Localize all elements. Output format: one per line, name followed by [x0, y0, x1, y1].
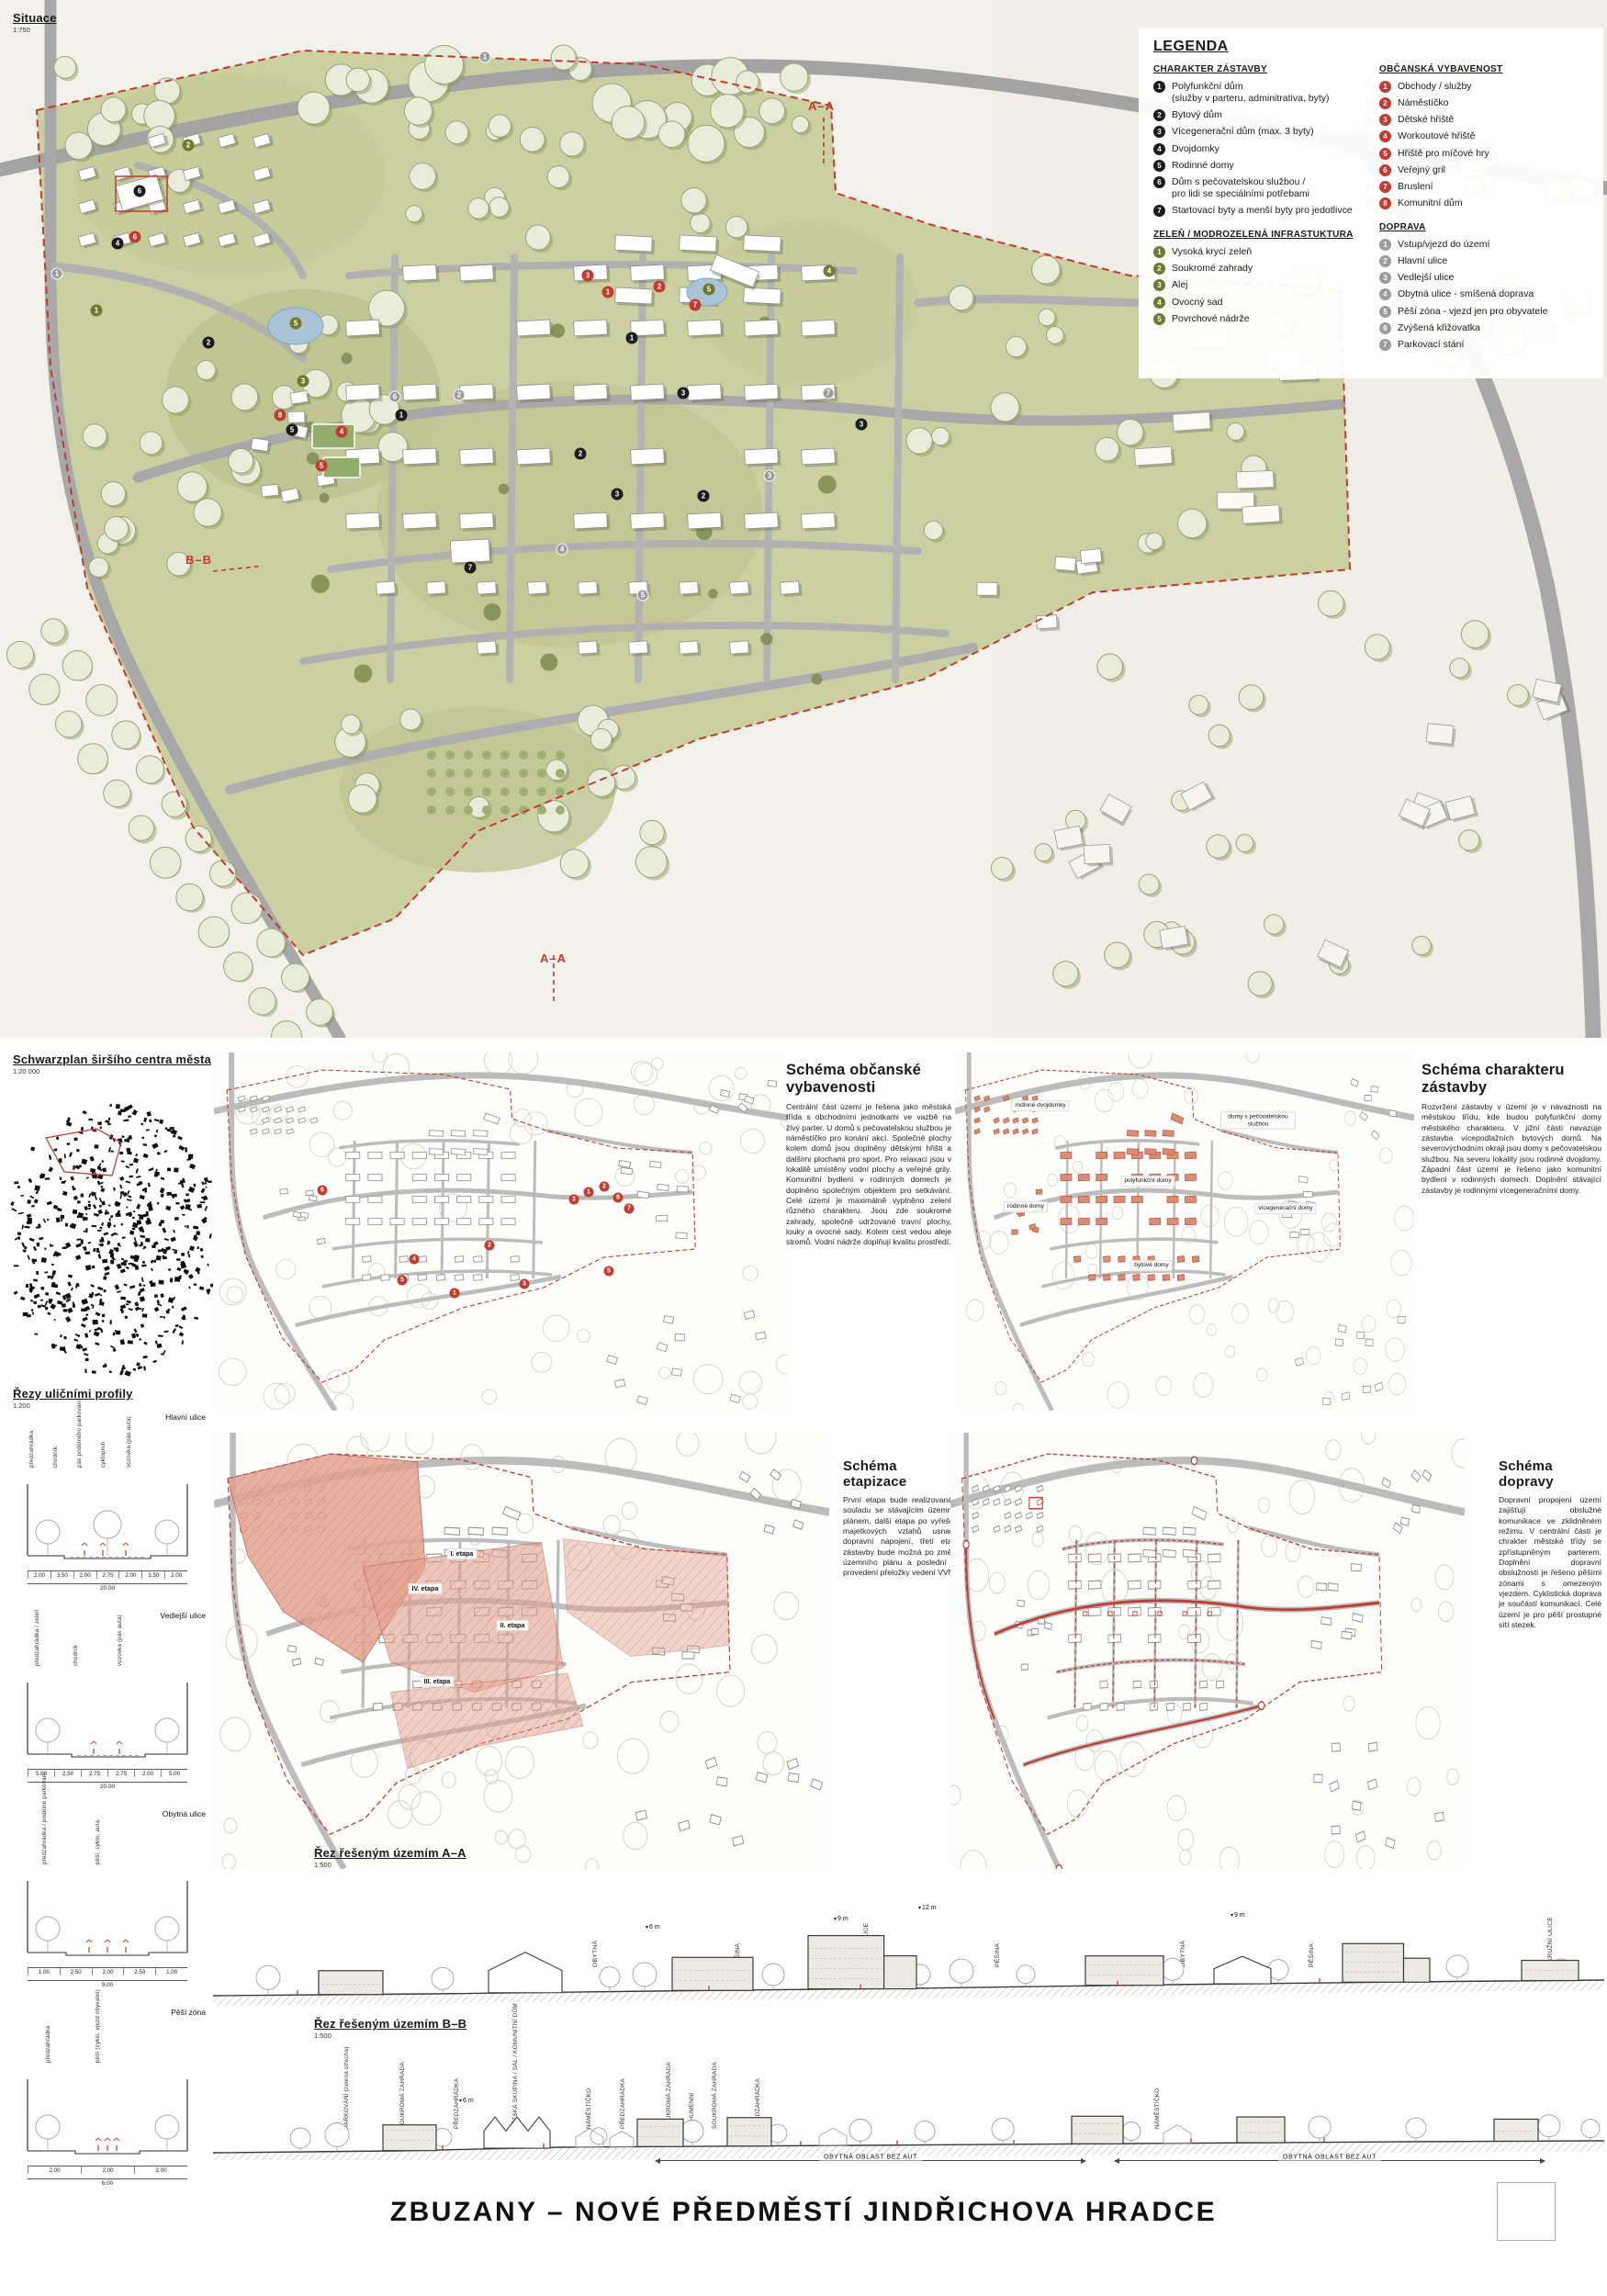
legend-item: 1Vysoká krycí zeleň: [1153, 246, 1363, 258]
legend-marker: 4: [1379, 130, 1391, 142]
map-marker: 2: [203, 337, 215, 349]
legend-item-label: Workoutové hřiště: [1398, 130, 1475, 141]
legend-item: 1Obchody / služby: [1379, 81, 1589, 93]
profile-zone-label: pěší (cyklo, vjezd obyvatel): [95, 1989, 101, 2063]
legend-group-zelen: ZELEŇ / MODROZELENÁ INFRASTUKTURA 1Vysok…: [1153, 230, 1363, 325]
scheme-map-vybavenost: 123845672351: [214, 1052, 788, 1411]
schwarzplan-scale: 1:20 000: [13, 1067, 211, 1075]
dimension-value: 2.00: [118, 1571, 141, 1579]
legend-group-title: ZELEŇ / MODROZELENÁ INFRASTUKTURA: [1153, 230, 1363, 240]
legend-marker: 5: [1379, 306, 1391, 318]
building-type-label: rodinné domy: [1004, 1201, 1048, 1212]
legend-marker: 1: [1379, 239, 1391, 251]
map-marker: 5: [637, 590, 649, 602]
profile-zone-label: předzahrádka / podélné parkování: [41, 1773, 48, 1864]
dimension-value: 2.50: [123, 1968, 155, 1975]
legend-item: 5Hřiště pro míčové hry: [1379, 148, 1589, 160]
map-marker: 4: [824, 265, 836, 277]
legend-marker: 8: [1379, 197, 1391, 209]
map-marker: 1: [51, 268, 63, 280]
map-marker: 1: [602, 287, 614, 298]
legend-item-label: Vícegenerační dům (max. 3 byty): [1172, 126, 1314, 137]
section-bb-scale: 1:500: [314, 2032, 466, 2040]
dimension-value: 2.50: [54, 1770, 81, 1777]
legend-group-charakter: CHARAKTER ZÁSTAVBY 1Polyfunkční dům(služ…: [1153, 64, 1363, 217]
dimension-value: 3.50: [141, 1571, 164, 1579]
legend-item: 5Rodinné domy: [1153, 160, 1363, 172]
legend-item-label: Dům s pečovatelskou službou /: [1172, 176, 1305, 187]
building-type-label: bytové domy: [1130, 1260, 1172, 1271]
scheme-marker: 5: [398, 1276, 408, 1286]
legend-item-label: Ovocný sad: [1172, 297, 1222, 308]
scheme-paragraph: Dopravní propojení území zajišťují obslu…: [1499, 1495, 1601, 1630]
building-type-label: vícegenerační domy: [1254, 1203, 1316, 1214]
profile-zone-label: cyklopruh: [100, 1442, 107, 1468]
scheme-text-etapizace: Schéma etapizace První etapa bude realiz…: [843, 1458, 961, 1579]
legend-item-label: Vysoká krycí zeleň: [1172, 246, 1252, 257]
legend-marker: 5: [1153, 160, 1165, 172]
legend-marker: 4: [1379, 288, 1391, 300]
legend-group-doprava: DOPRAVA 1Vstup/vjezd do území2Hlavní uli…: [1379, 222, 1589, 351]
scheme-charakter-labels: rodinné dvojdomkyrodinné domydomy s pečo…: [955, 1052, 1414, 1411]
map-marker: 5: [316, 460, 328, 472]
legend-item-label: Pěší zóna - vjezd jen pro obyvatele: [1398, 306, 1547, 317]
scheme-marker: 2: [485, 1241, 495, 1251]
legend-item: 6Veřejný gril: [1379, 164, 1589, 176]
dimension-value: 2.00: [81, 2167, 134, 2174]
section-aa-title-block: Řez řešeným územím A–A 1:500: [314, 1846, 466, 1869]
scheme-marker: 4: [410, 1255, 420, 1265]
map-marker: 3: [678, 388, 690, 400]
map-marker: 2: [654, 281, 666, 293]
legend-marker: 7: [1379, 181, 1391, 193]
profile-hlavni-ulice: Hlavní ulice předzahrádkachodníkpás podé…: [11, 1412, 209, 1596]
map-marker: 4: [112, 238, 124, 250]
section-bb-title-block: Řez řešeným územím B–B 1:500: [314, 2017, 466, 2040]
legend-item: 3Alej: [1153, 279, 1363, 291]
scheme-title: Schéma charakteru zástavby: [1422, 1062, 1601, 1097]
map-marker: 3: [582, 270, 594, 282]
scheme-text-doprava: Schéma dopravy Dopravní propojení území …: [1499, 1458, 1601, 1630]
legend-marker: 3: [1379, 114, 1391, 126]
legend-item-sub: pro lidi se speciálními potřebami: [1172, 188, 1309, 200]
scheme-paragraph: Rozvržení zástavby v území je v návaznos…: [1422, 1102, 1601, 1196]
legend-item: 3Vícegenerační dům (max. 3 byty): [1153, 126, 1363, 138]
legend-item: 6Zvýšená křižovatka: [1379, 322, 1589, 334]
legend-marker: 1: [1153, 81, 1165, 93]
legend-marker: 2: [1153, 109, 1165, 121]
extent-arrow-label: OBYTNÁ OBLAST BEZ AUT: [1278, 2155, 1381, 2161]
legend-item: 7Bruslení: [1379, 181, 1589, 193]
map-marker: 5: [703, 284, 715, 296]
profile-drawing: [11, 1468, 204, 1567]
profile-dimensions: 1.002.502.002.501.00: [28, 1967, 187, 1975]
profile-labels: předzahrádkachodníkpás podélného parková…: [11, 1420, 209, 1468]
building-type-label: rodinné dvojdomky: [1011, 1100, 1069, 1111]
legend-title: LEGENDA: [1153, 39, 1589, 55]
legend-group-title: CHARAKTER ZÁSTAVBY: [1153, 64, 1363, 74]
legend-item-label: Vstup/vjezd do území: [1398, 239, 1489, 250]
profile-labels: předzahrádka / zeleňchodníkvozovka (pás …: [11, 1618, 209, 1666]
scheme-doprava-drawing: [950, 1433, 1465, 1869]
legend-item-label: Dvojdomky: [1172, 143, 1219, 154]
legend-marker: 7: [1379, 339, 1391, 351]
legend-item: 6Dům s pečovatelskou službou /pro lidi s…: [1153, 176, 1363, 200]
scheme-marker: 2: [600, 1182, 610, 1192]
profile-drawing: [11, 1864, 204, 1964]
poster-title: ZBUZANY – NOVÉ PŘEDMĚSTÍ JINDŘICHOVA HRA…: [0, 2197, 1607, 2228]
poster-page: Situace 1:750 A–A A–A B–B 11222333456712…: [0, 0, 1607, 2296]
legend-item-label: Startovací byty a menší byty pro jedotli…: [1172, 205, 1353, 216]
scheme-marker: 1: [450, 1289, 460, 1299]
dimension-value: 2.00: [28, 1571, 51, 1579]
map-marker: 6: [389, 391, 401, 403]
legend-marker: 2: [1153, 263, 1165, 275]
legend-item-label: Bruslení: [1398, 181, 1433, 192]
legend-group-obcanska: OBČANSKÁ VYBAVENOST 1Obchody / služby2Ná…: [1379, 64, 1589, 209]
legend-item-label: Parkovací stání: [1398, 339, 1464, 350]
map-marker: 6: [129, 231, 141, 243]
dimension-value: 1.00: [155, 1968, 187, 1975]
profile-total: 6.00: [28, 2178, 187, 2187]
building-type-label: domy s pečovatelskou službou: [1220, 1111, 1296, 1129]
legend-item-label: Alej: [1172, 279, 1188, 290]
legend-marker: 4: [1153, 297, 1165, 309]
legend-marker: 1: [1379, 81, 1391, 93]
profile-obytna-ulice: Obytná ulice předzahrádka / podélné park…: [11, 1809, 209, 1993]
map-marker: 7: [465, 562, 477, 574]
map-marker: 2: [183, 140, 195, 152]
legend-item: 3Dětské hřiště: [1379, 114, 1589, 126]
legend-item-label: Komunitní dům: [1398, 197, 1463, 208]
scheme-text-charakter: Schéma charakteru zástavby Rozvržení zás…: [1422, 1062, 1601, 1196]
legend-item-label: Náměstíčko: [1398, 97, 1448, 108]
scheme-marker: 3: [520, 1279, 530, 1289]
scheme-title: Schéma občanské vybavenosti: [786, 1062, 951, 1097]
legend-marker: 3: [1153, 279, 1165, 291]
legend-item: 4Workoutové hřiště: [1379, 130, 1589, 142]
scheme-text-vybavenost: Schéma občanské vybavenosti Centrální čá…: [786, 1062, 951, 1248]
legend-marker: 1: [1153, 246, 1165, 258]
schwarzplan-title: Schwarzplan širšího centra města: [13, 1052, 211, 1066]
legend-item-sub: (služby v parteru, adminitrativa, byty): [1172, 93, 1330, 105]
profile-labels: předzahrádka / podélné parkovánípěší, cy…: [11, 1817, 209, 1864]
profile-zone-label: pás podélného parkování: [76, 1400, 83, 1468]
dimension-value: 3.50: [51, 1571, 73, 1579]
dimension-value: 2.75: [107, 1770, 134, 1777]
legend-item-label: Bytový dům: [1172, 109, 1222, 120]
schwarzplan-title-block: Schwarzplan širšího centra města 1:20 00…: [13, 1052, 211, 1075]
legend-item-label: Dětské hřiště: [1398, 114, 1454, 125]
map-marker: 1: [91, 305, 103, 317]
scheme-map-charakter: rodinné dvojdomkyrodinné domydomy s pečo…: [955, 1052, 1414, 1411]
profile-dimensions: 5.002.502.752.752.005.00: [28, 1769, 187, 1777]
map-marker: 6: [134, 186, 146, 197]
profile-drawing: [11, 2063, 204, 2162]
scheme-marker: 5: [604, 1266, 614, 1277]
etapa-label: II. etapa: [497, 1620, 529, 1631]
legend-marker: 2: [1379, 97, 1391, 109]
profile-dimensions: 2.003.502.002.752.003.502.00: [28, 1570, 187, 1579]
legend-item: 3Vedlejší ulice: [1379, 272, 1589, 284]
legend-marker: 3: [1379, 272, 1391, 284]
scheme-map-doprava: [950, 1433, 1465, 1869]
profile-zone-label: předzahrádka: [45, 2026, 51, 2063]
legend-item: 1Polyfunkční dům(služby v parteru, admin…: [1153, 81, 1363, 105]
legend-group-title: DOPRAVA: [1379, 222, 1589, 232]
map-marker: 3: [764, 470, 776, 482]
legend: LEGENDA CHARAKTER ZÁSTAVBY 1Polyfunkční …: [1139, 28, 1603, 378]
map-marker: 7: [690, 299, 702, 311]
legend-item-label: Vedlejší ulice: [1398, 272, 1454, 283]
map-marker: 1: [479, 51, 491, 63]
legend-item: 8Komunitní dům: [1379, 197, 1589, 209]
section-bb-drawing: [213, 2068, 1604, 2160]
profile-labels: předzahrádkapěší (cyklo, vjezd obyvatel): [11, 2015, 209, 2063]
dimension-value: 2.00: [134, 1770, 161, 1777]
map-marker: 2: [575, 448, 587, 460]
legend-item: 7Startovací byty a menší byty pro jedotl…: [1153, 205, 1363, 217]
legend-item: 5Povrchové nádrže: [1153, 313, 1363, 325]
dimension-value: 2.00: [164, 1571, 187, 1579]
etapa-label: I. etapa: [447, 1548, 478, 1559]
map-marker: 3: [856, 419, 868, 431]
schwarzplan-map: [9, 1087, 213, 1381]
etapa-label: IV. etapa: [409, 1583, 443, 1594]
section-aa-scale: 1:500: [314, 1861, 466, 1869]
scheme-marker: 6: [318, 1186, 328, 1196]
scheme-map-etapizace: I. etapaIV. etapaII. etapaIII. etapa: [214, 1433, 829, 1869]
legend-item-label: Hlavní ulice: [1398, 255, 1447, 266]
legend-item: 2Bytový dům: [1153, 109, 1363, 121]
logo-placeholder: [1497, 2182, 1556, 2241]
section-aa-drawing: [213, 1908, 1604, 2011]
legend-marker: 4: [1153, 143, 1165, 155]
profile-zone-label: chodník: [52, 1446, 59, 1468]
profiles-title: Řezy uličními profily: [13, 1387, 133, 1401]
profile-dimensions: 2.002.002.00: [28, 2166, 187, 2174]
profile-zone-label: chodník: [73, 1645, 79, 1666]
profile-vedlejsi-ulice: Vedlejší ulice předzahrádka / zeleňchodn…: [11, 1611, 209, 1795]
dimension-value: 2.75: [81, 1770, 107, 1777]
map-marker: 2: [698, 490, 710, 502]
legend-marker: 6: [1379, 164, 1391, 176]
profiles-title-block: Řezy uličními profily 1:200: [13, 1387, 133, 1410]
legend-marker: 2: [1379, 255, 1391, 267]
map-marker: 4: [556, 544, 568, 556]
map-marker: 5: [287, 424, 298, 436]
map-marker: 3: [612, 489, 624, 501]
legend-item: 2Hlavní ulice: [1379, 255, 1589, 267]
legend-item: 1Vstup/vjezd do území: [1379, 239, 1589, 251]
extent-arrow-label: OBYTNÁ OBLAST BEZ AUT: [819, 2155, 922, 2161]
legend-item-label: Obchody / služby: [1398, 81, 1472, 92]
map-marker: 2: [454, 389, 466, 401]
scheme-marker: 1: [584, 1187, 594, 1198]
scheme-title: Schéma etapizace: [843, 1458, 961, 1490]
dimension-value: 2.00: [92, 1968, 124, 1975]
map-marker: 4: [336, 426, 348, 438]
dimension-value: 2.75: [96, 1571, 119, 1579]
legend-item-label: Polyfunkční dům: [1172, 81, 1243, 92]
map-marker: 3: [298, 376, 309, 388]
building-type-label: polyfunkční domy: [1120, 1176, 1174, 1187]
legend-item: 2Soukromé zahrady: [1153, 263, 1363, 275]
dimension-value: 2.00: [73, 1571, 96, 1579]
dimension-value: 2.00: [134, 2167, 187, 2174]
scheme-title: Schéma dopravy: [1499, 1458, 1601, 1490]
legend-marker: 7: [1153, 205, 1165, 217]
profile-pesi-zona: Pěší zóna předzahrádkapěší (cyklo, vjezd…: [11, 2008, 209, 2191]
extent-arrow: OBYTNÁ OBLAST BEZ AUT: [656, 2160, 1085, 2161]
scheme-paragraph: První etapa bude realizovaná v souladu s…: [843, 1495, 961, 1579]
legend-marker: 6: [1379, 322, 1391, 334]
legend-item: 4Obytná ulice - smíšená doprava: [1379, 288, 1589, 300]
legend-item-label: Soukromé zahrady: [1172, 263, 1253, 274]
legend-item: 4Dvojdomky: [1153, 143, 1363, 155]
section-bb-arrows: OBYTNÁ OBLAST BEZ AUTOBYTNÁ OBLAST BEZ A…: [213, 2160, 1604, 2178]
legend-item: 4Ovocný sad: [1153, 297, 1363, 309]
legend-item: 2Náměstíčko: [1379, 97, 1589, 109]
map-marker: 1: [626, 332, 638, 344]
profiles-scale: 1:200: [13, 1401, 133, 1410]
legend-item: 5Pěší zóna - vjezd jen pro obyvatele: [1379, 306, 1589, 318]
legend-item-label: Rodinné domy: [1172, 160, 1234, 171]
dimension-value: 5.00: [161, 1770, 187, 1777]
etapa-label: III. etapa: [421, 1676, 455, 1687]
extent-arrow: OBYTNÁ OBLAST BEZ AUT: [1115, 2160, 1545, 2161]
section-aa-title: Řez řešeným územím A–A: [314, 1846, 466, 1860]
section-bb-title: Řez řešeným územím B–B: [314, 2017, 466, 2031]
profile-zone-label: předzahrádka / zeleň: [34, 1609, 40, 1666]
legend-marker: 5: [1379, 148, 1391, 160]
profile-drawing: [11, 1666, 204, 1765]
legend-item: 7Parkovací stání: [1379, 339, 1589, 351]
map-marker: 1: [396, 410, 408, 422]
profile-total: 9.00: [28, 1980, 187, 1988]
profile-zone-label: vozovka (pás auta): [126, 1416, 132, 1468]
scheme-paragraph: Centrální část území je řešena jako měst…: [786, 1102, 951, 1248]
profile-zone-label: vozovka (pás auta): [117, 1615, 123, 1666]
legend-item-label: Veřejný gril: [1398, 164, 1445, 175]
dimension-value: 2.50: [60, 1968, 92, 1975]
legend-item-label: Obytná ulice - smíšená doprava: [1398, 288, 1534, 299]
legend-group-title: OBČANSKÁ VYBAVENOST: [1379, 64, 1589, 74]
situace-plan: Situace 1:750 A–A A–A B–B 11222333456712…: [0, 0, 1607, 1038]
legend-item-label: Zvýšená křižovatka: [1398, 322, 1480, 333]
scheme-marker: 8: [613, 1193, 624, 1203]
profile-zone-label: předzahrádka: [28, 1431, 35, 1468]
profile-total: 20.00: [28, 1583, 187, 1592]
scheme-marker: 7: [624, 1204, 635, 1214]
legend-marker: 3: [1153, 126, 1165, 138]
legend-item-label: Hřiště pro míčové hry: [1398, 148, 1489, 159]
scheme-etapizace-labels: I. etapaIV. etapaII. etapaIII. etapa: [214, 1433, 829, 1869]
dimension-value: 1.00: [28, 1968, 60, 1975]
legend-marker: 6: [1153, 176, 1165, 188]
legend-item-label: Povrchové nádrže: [1172, 313, 1250, 324]
dimension-value: 2.00: [28, 2167, 81, 2174]
scheme-marker: 3: [569, 1195, 579, 1205]
profile-zone-label: pěší, cyklo, auta: [95, 1820, 101, 1864]
profile-total: 20.00: [28, 1782, 187, 1790]
map-marker: 7: [823, 388, 835, 400]
map-marker: 8: [275, 410, 287, 422]
scheme-vybavenost-markers: 123845672351: [214, 1052, 788, 1411]
legend-marker: 5: [1153, 313, 1165, 325]
map-marker: 5: [290, 318, 302, 330]
